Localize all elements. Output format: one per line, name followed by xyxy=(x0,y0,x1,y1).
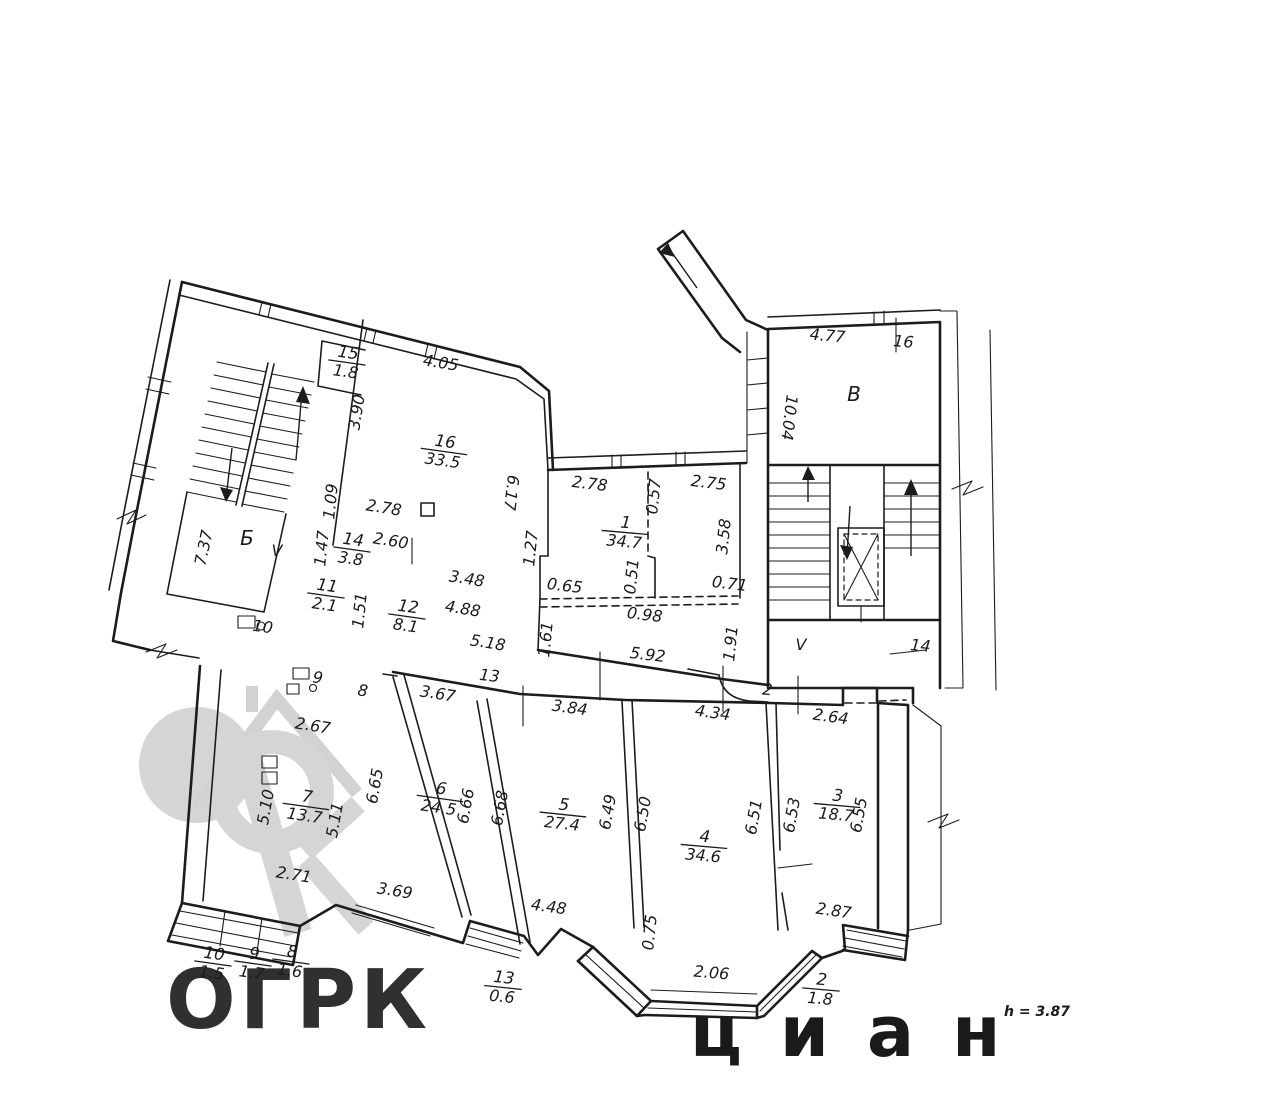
dimension-label: 0.65 xyxy=(546,574,584,597)
dimension-label: 1.91 xyxy=(719,625,742,662)
svg-text:1.5: 1.5 xyxy=(198,961,226,983)
dimension-label: 3.69 xyxy=(376,878,414,902)
dimension-label: 0.71 xyxy=(711,572,749,595)
dimension-label: 5.18 xyxy=(469,630,507,654)
svg-text:24.5: 24.5 xyxy=(420,796,458,820)
dimension-label: 0.57 xyxy=(642,477,665,515)
dimension-label: 6.65 xyxy=(362,767,387,805)
dimension-label: 7.37 xyxy=(191,528,217,568)
svg-text:1.6: 1.6 xyxy=(276,959,304,981)
height-note: h = 3.87 xyxy=(1004,1004,1070,1020)
room-label: 130.6 xyxy=(482,966,523,1008)
svg-text:6: 6 xyxy=(435,778,448,798)
svg-text:1: 1 xyxy=(620,513,632,533)
dimension-label: 6.51 xyxy=(741,798,766,836)
dimension-label: 0.51 xyxy=(620,558,643,595)
dimension-label: 4.77 xyxy=(809,325,847,347)
dimension-label: 0.98 xyxy=(626,603,664,626)
dimension-label: 2.78 xyxy=(571,472,609,495)
room-label: 1633.5 xyxy=(418,429,470,473)
dimension-label: 6.17 xyxy=(500,474,523,512)
floor-plan-svg: ОГРК циан xyxy=(0,0,1280,1099)
dimension-label: 10.04 xyxy=(777,394,801,442)
dimension-label: 1.47 xyxy=(310,529,333,567)
dimension-label: 4.88 xyxy=(444,596,482,620)
dimension-label: 3.90 xyxy=(344,393,368,431)
room-label: 143.8 xyxy=(331,528,374,571)
plan-label: В xyxy=(847,382,861,406)
dimension-label: 2.78 xyxy=(365,495,403,519)
room-label: 128.1 xyxy=(386,595,429,638)
dimension-label: 6.66 xyxy=(453,787,478,825)
room-label: 434.6 xyxy=(679,825,729,867)
dimension-label: 2.64 xyxy=(812,705,850,729)
svg-text:13: 13 xyxy=(493,967,516,988)
plan-label: V xyxy=(272,541,284,560)
room-label: 151.8 xyxy=(326,341,369,384)
svg-text:3: 3 xyxy=(832,786,844,806)
plan-label: 10 xyxy=(251,616,274,638)
dimension-label: 6.49 xyxy=(595,793,620,831)
dimension-label: 4.05 xyxy=(422,350,460,374)
svg-text:0.6: 0.6 xyxy=(488,986,515,1008)
dimension-label: 6.53 xyxy=(779,796,804,834)
svg-text:1.8: 1.8 xyxy=(332,360,360,382)
dimension-label: 2.06 xyxy=(693,962,730,984)
room-label: 134.7 xyxy=(600,511,650,553)
svg-text:5: 5 xyxy=(558,795,570,815)
svg-text:2: 2 xyxy=(816,970,828,990)
room-label: 112.1 xyxy=(305,574,348,617)
svg-text:1.7: 1.7 xyxy=(238,961,267,983)
plan-label: 14 xyxy=(910,635,932,656)
plan-label: 13 xyxy=(478,665,500,686)
dimension-label: 6.55 xyxy=(846,796,871,834)
dimension-label: 3.48 xyxy=(448,566,486,590)
dimension-label: 3.67 xyxy=(419,681,458,705)
plan-label: Б xyxy=(240,526,254,550)
plan-labels: 151.81633.5134.7143.8112.1128.1713.7624.… xyxy=(191,325,1071,1020)
dimension-label: 4.34 xyxy=(694,701,732,725)
svg-text:34.7: 34.7 xyxy=(606,530,644,552)
plan-label: 2 xyxy=(762,680,774,700)
svg-text:4: 4 xyxy=(699,827,711,847)
plan-label: V xyxy=(796,635,808,654)
room-label: 527.4 xyxy=(538,793,589,836)
svg-text:8.1: 8.1 xyxy=(392,614,420,636)
plan-label: 16 xyxy=(893,331,915,352)
dimension-label: 6.50 xyxy=(630,795,655,833)
dimension-label: 3.58 xyxy=(712,518,735,555)
dimension-label: 2.60 xyxy=(372,528,410,552)
floor-plan-page: ОГРК циан xyxy=(0,0,1280,1099)
svg-text:27.4: 27.4 xyxy=(543,812,580,835)
dimension-label: 3.84 xyxy=(551,696,589,720)
plan-label: 8 xyxy=(356,680,369,700)
svg-text:1.8: 1.8 xyxy=(807,988,834,1009)
dimension-label: 1.51 xyxy=(348,592,371,629)
dimension-label: 1.09 xyxy=(319,483,342,520)
dimension-label: 0.75 xyxy=(638,914,661,951)
dimension-label: 1.61 xyxy=(534,621,557,658)
dimension-label: 4.48 xyxy=(530,895,568,919)
watermark-faint-text: циан xyxy=(690,991,1039,1073)
dimension-label: 2.75 xyxy=(690,471,728,494)
plan-label: 9 xyxy=(311,667,324,687)
dimension-label: 1.27 xyxy=(519,529,542,567)
svg-text:3.8: 3.8 xyxy=(337,547,365,569)
svg-text:13.7: 13.7 xyxy=(286,804,325,828)
svg-text:33.5: 33.5 xyxy=(424,449,462,473)
dimension-label: 2.87 xyxy=(815,899,854,923)
svg-text:2.1: 2.1 xyxy=(311,593,339,615)
svg-text:34.6: 34.6 xyxy=(685,844,722,866)
dimension-label: 5.92 xyxy=(629,643,667,666)
